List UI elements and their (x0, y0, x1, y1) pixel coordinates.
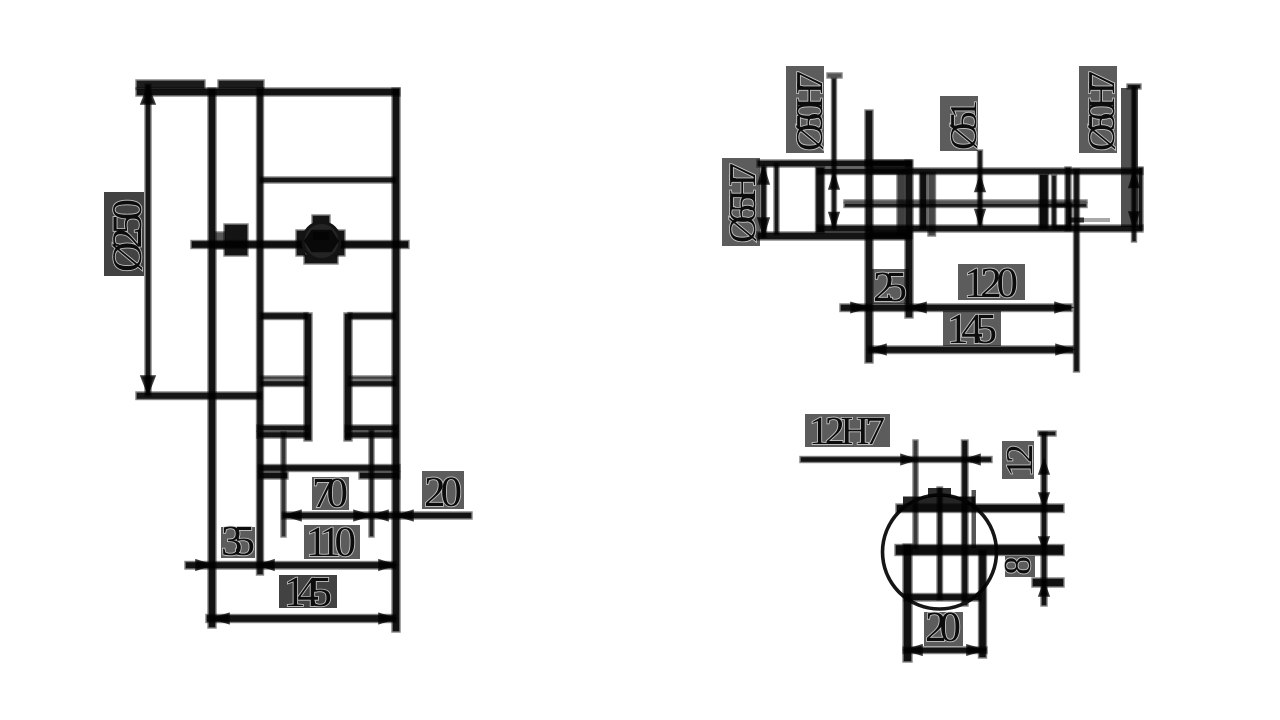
svg-text:145: 145 (947, 306, 997, 353)
svg-text:Ø65H7: Ø65H7 (722, 163, 764, 243)
svg-text:110: 110 (306, 519, 356, 566)
svg-text:70: 70 (312, 470, 348, 517)
svg-text:Ø50H7: Ø50H7 (789, 71, 831, 151)
svg-text:35: 35 (221, 518, 255, 565)
svg-text:25: 25 (873, 264, 907, 311)
svg-text:12: 12 (999, 444, 1041, 477)
svg-text:145: 145 (284, 569, 332, 616)
svg-text:20: 20 (424, 469, 462, 516)
svg-text:20: 20 (925, 604, 961, 651)
svg-text:12H7: 12H7 (809, 408, 885, 453)
svg-text:120: 120 (964, 260, 1018, 307)
svg-text:Ø51: Ø51 (943, 100, 985, 150)
svg-text:8: 8 (997, 556, 1039, 575)
svg-text:Ø250: Ø250 (105, 199, 151, 272)
svg-text:Ø50H7: Ø50H7 (1081, 71, 1123, 151)
